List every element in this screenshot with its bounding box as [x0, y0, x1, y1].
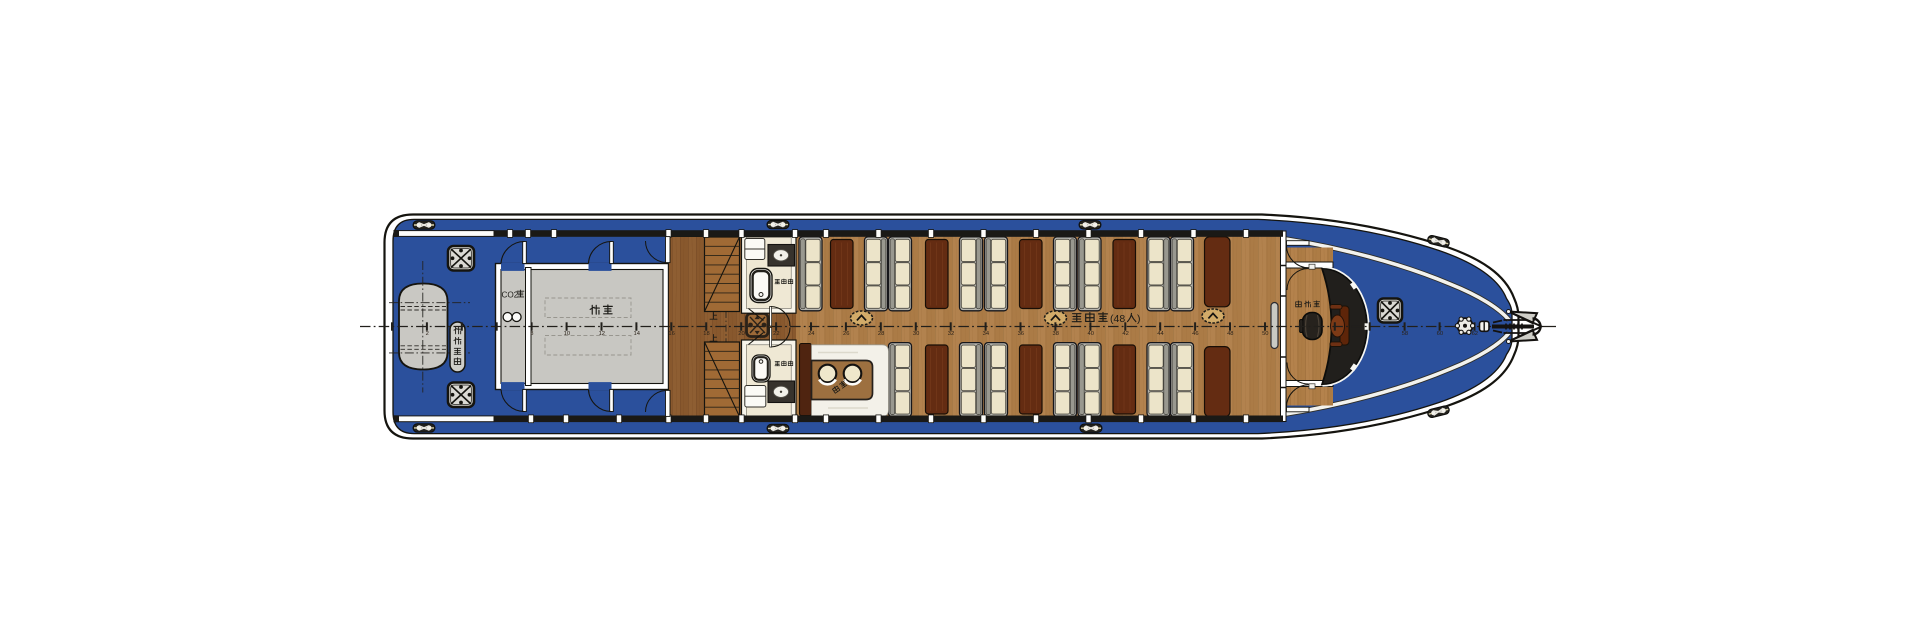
- svg-text:60: 60: [1437, 331, 1443, 337]
- svg-text:34: 34: [983, 331, 990, 337]
- svg-text:12: 12: [599, 331, 605, 337]
- svg-text:50: 50: [1262, 331, 1268, 337]
- svg-text:38: 38: [1052, 331, 1058, 337]
- svg-text:32: 32: [948, 331, 954, 337]
- svg-text:2: 2: [426, 331, 429, 337]
- svg-text:10: 10: [564, 331, 570, 337]
- svg-text:58: 58: [1402, 331, 1408, 337]
- svg-text:(48: (48: [1110, 313, 1125, 325]
- svg-text:18: 18: [703, 331, 709, 337]
- svg-text:22: 22: [773, 331, 779, 337]
- svg-text:28: 28: [878, 331, 884, 337]
- svg-text:44: 44: [1157, 331, 1164, 337]
- svg-text:24: 24: [808, 331, 815, 337]
- svg-text:62: 62: [1472, 331, 1478, 337]
- svg-text:46: 46: [1192, 331, 1198, 337]
- svg-text:14: 14: [633, 331, 640, 337]
- svg-text:26: 26: [843, 331, 849, 337]
- svg-text:48: 48: [1227, 331, 1233, 337]
- svg-text:40: 40: [1087, 331, 1093, 337]
- svg-text:8: 8: [530, 331, 533, 337]
- svg-text:): ): [1137, 313, 1141, 325]
- svg-text:CO2: CO2: [502, 291, 519, 300]
- svg-text:20: 20: [738, 331, 744, 337]
- svg-text:16: 16: [668, 331, 674, 337]
- svg-text:30: 30: [913, 331, 919, 337]
- svg-text:36: 36: [1018, 331, 1024, 337]
- svg-text:42: 42: [1122, 331, 1128, 337]
